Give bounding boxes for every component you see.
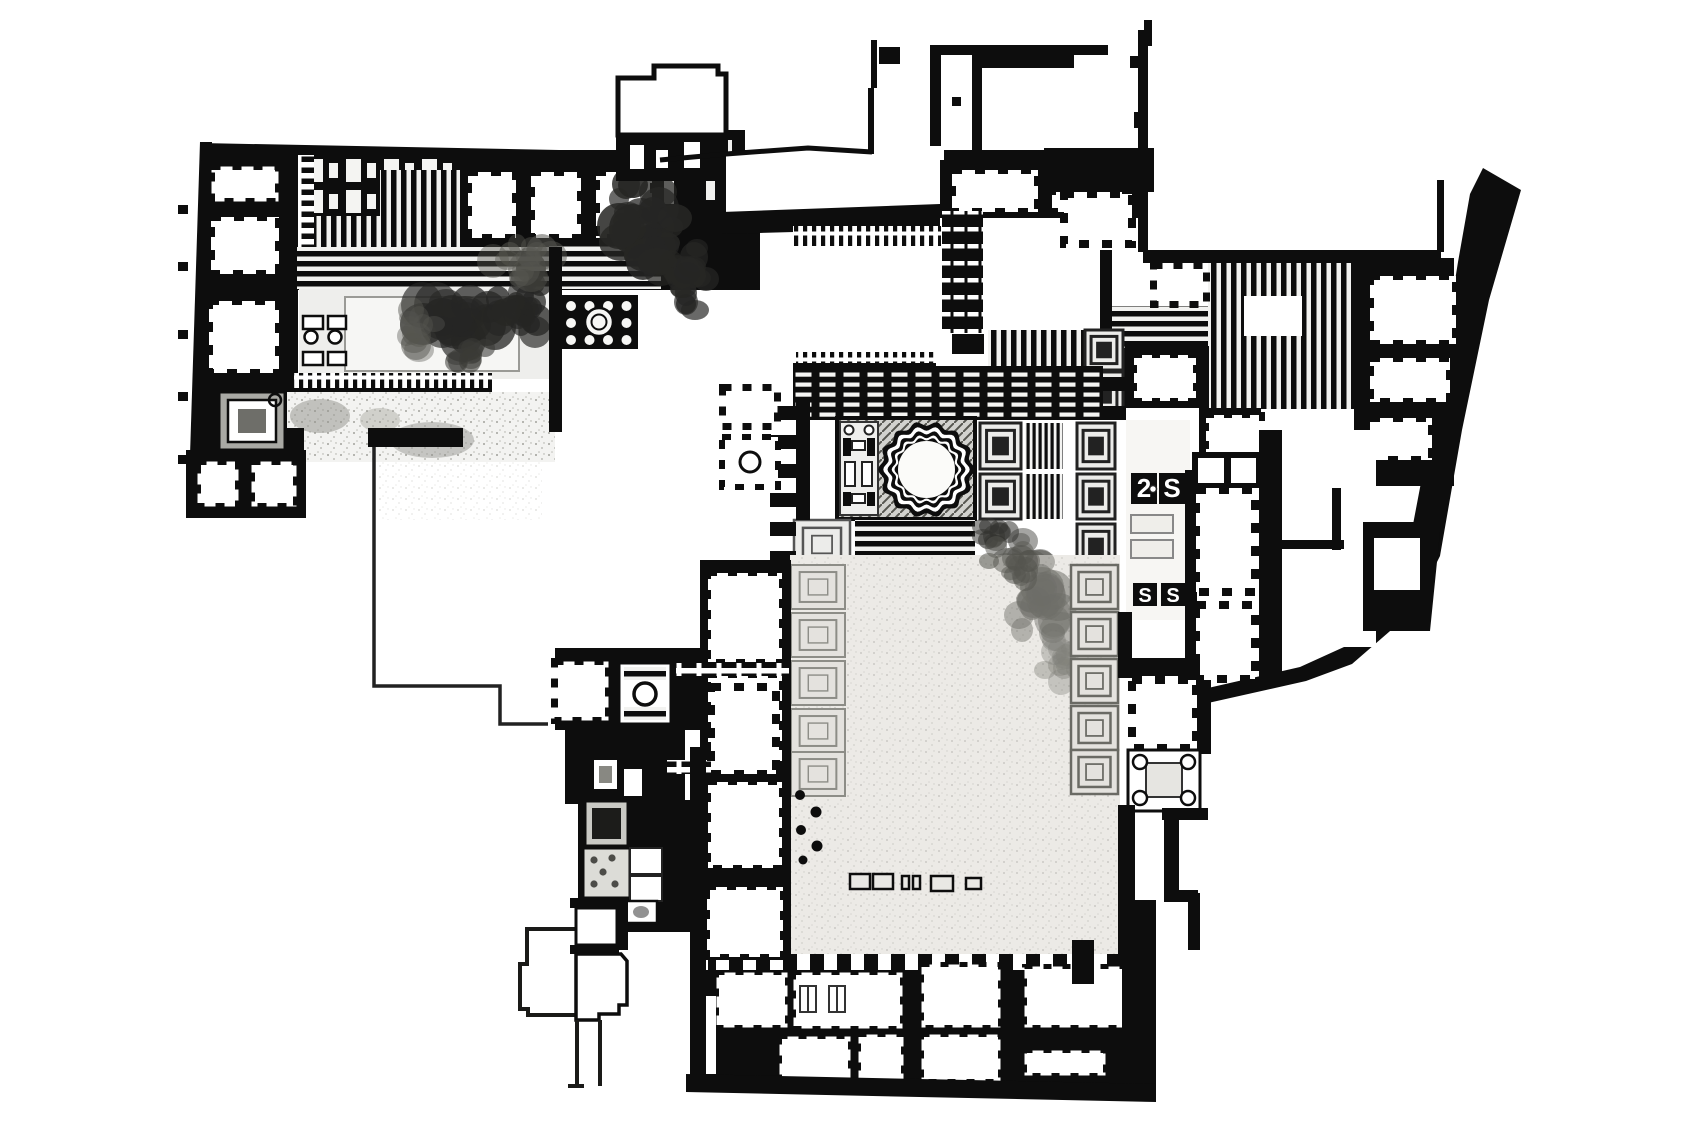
svg-text:S: S [1163, 473, 1180, 503]
svg-text:S: S [1166, 585, 1179, 607]
svg-text:S: S [1138, 585, 1151, 607]
